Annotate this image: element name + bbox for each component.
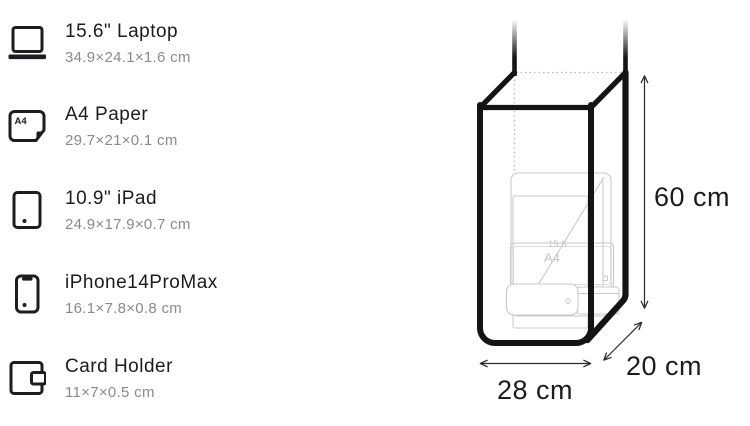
iphone-icon: [8, 274, 46, 314]
list-item: 15.6" Laptop 34.9×24.1×1.6 cm: [8, 20, 191, 66]
depth-label: 20 cm: [626, 351, 702, 381]
item-dimensions: 16.1×7.8×0.8 cm: [65, 301, 218, 316]
list-item: Card Holder 11×7×0.5 cm: [8, 355, 173, 401]
list-item: 10.9" iPad 24.9×17.9×0.7 cm: [8, 187, 191, 233]
height-label: 60 cm: [654, 182, 730, 212]
item-dimensions: 24.9×17.9×0.7 cm: [65, 217, 191, 232]
bag-contents-outlines: [507, 173, 620, 328]
a4-paper-icon: A4: [8, 106, 46, 146]
card-holder-icon: [8, 358, 46, 398]
inner-a4-label: A4: [544, 250, 560, 265]
ipad-icon: [8, 190, 46, 230]
bag-diagram: 15.6 A4 60 cm 28 cm 20 cm: [420, 0, 750, 426]
item-dimensions: 34.9×24.1×1.6 cm: [65, 50, 191, 65]
a4-icon-label: A4: [15, 116, 28, 127]
item-dimensions: 29.7×21×0.1 cm: [65, 133, 178, 148]
item-name: iPhone14ProMax: [65, 273, 218, 292]
size-comparison-panel: 15.6" Laptop 34.9×24.1×1.6 cm A4 A4 Pape…: [0, 0, 750, 426]
width-label: 28 cm: [497, 375, 573, 405]
item-dimensions: 11×7×0.5 cm: [65, 385, 173, 400]
inner-laptop-label: 15.6: [548, 239, 567, 250]
dimension-arrows: [481, 76, 645, 364]
item-name: A4 Paper: [65, 105, 178, 124]
item-name: 15.6" Laptop: [65, 22, 191, 41]
inner-camera-mark: [603, 276, 608, 281]
list-item: iPhone14ProMax 16.1×7.8×0.8 cm: [8, 271, 218, 317]
laptop-icon: [8, 23, 46, 63]
item-name: 10.9" iPad: [65, 189, 191, 208]
list-item: A4 A4 Paper 29.7×21×0.1 cm: [8, 103, 178, 149]
item-name: Card Holder: [65, 357, 173, 376]
bag-top-face: [480, 73, 626, 108]
